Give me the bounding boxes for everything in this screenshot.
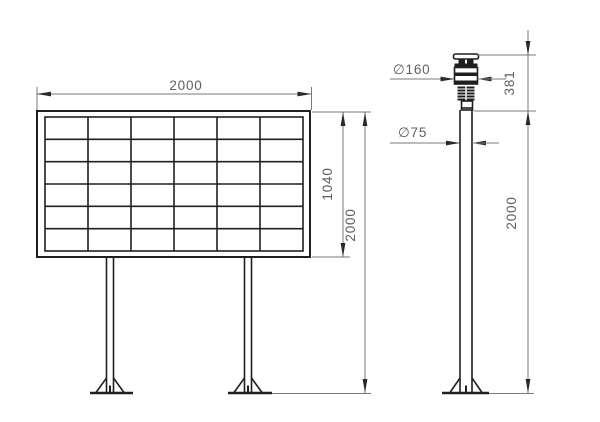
sensor-post — [459, 59, 466, 65]
sensor-cap — [454, 54, 479, 59]
drawing-canvas: 2000 1040 2000 — [0, 0, 600, 422]
arrowhead-right — [441, 77, 455, 82]
pole-foot-gusset — [450, 378, 460, 393]
technical-drawing: 2000 1040 2000 — [0, 0, 600, 422]
head-diameter-label: ∅160 — [393, 62, 430, 77]
arrowhead-left — [37, 92, 51, 97]
pole-foot-gusset — [472, 378, 482, 393]
arrowhead-right — [298, 92, 312, 97]
panel-width-label: 2000 — [169, 78, 202, 93]
arrowhead-down — [526, 41, 531, 55]
arrowhead-up — [526, 111, 531, 125]
left-foot-gusset — [96, 378, 107, 393]
sensor-head — [454, 54, 479, 110]
sensor-post — [467, 59, 474, 65]
overall-height-label: 2000 — [343, 208, 358, 241]
left-foot-gusset — [114, 378, 125, 393]
arrowhead-up — [363, 112, 368, 126]
head-height-label: 381 — [502, 71, 517, 96]
right-foot-gusset — [252, 378, 263, 393]
pole-diameter-label: ∅75 — [398, 125, 427, 140]
right-foot-gusset — [234, 378, 245, 393]
radiation-shield-louvers — [458, 86, 475, 101]
arrowhead-up — [341, 112, 346, 126]
sensor-band — [455, 81, 478, 85]
sensor-band — [455, 73, 478, 77]
arrowhead-right — [446, 141, 460, 146]
side-view: ∅160 ∅75 381 2000 — [390, 30, 536, 394]
arrowhead-down — [363, 379, 368, 393]
arrowhead-down — [526, 379, 531, 393]
panel-height-label: 1040 — [320, 167, 335, 200]
arrowhead-down — [341, 243, 346, 257]
pole-height-label: 2000 — [504, 196, 519, 229]
panel-grid — [45, 117, 303, 251]
front-view: 2000 1040 2000 — [37, 78, 371, 394]
